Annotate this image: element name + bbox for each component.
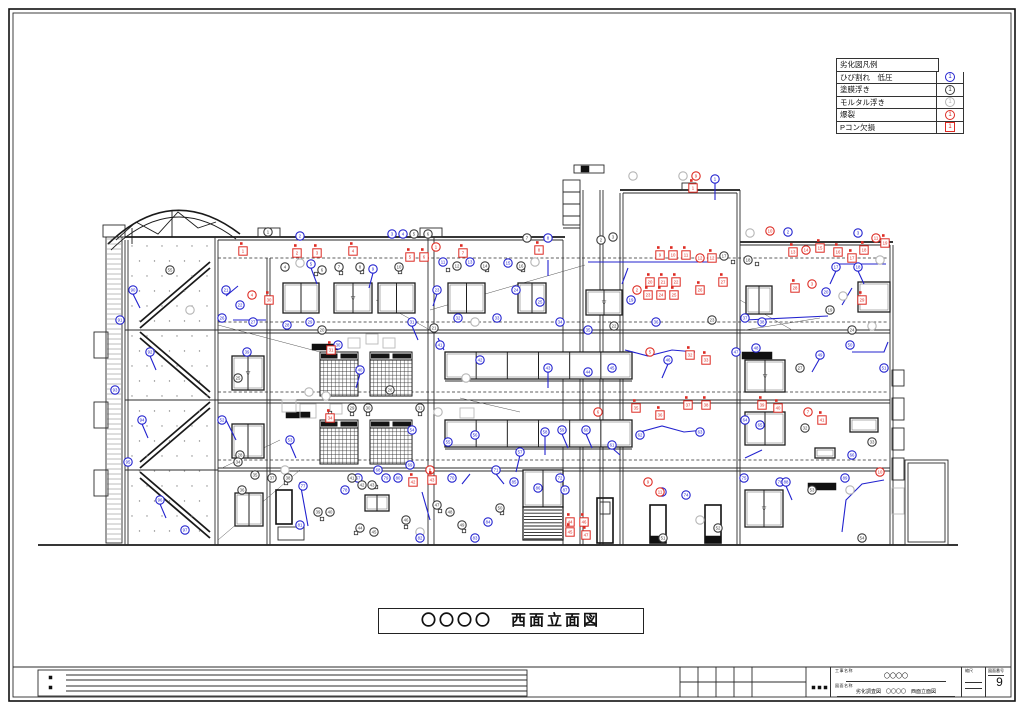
legend-symbol-circle: 1 bbox=[945, 97, 955, 107]
svg-text:21: 21 bbox=[661, 280, 666, 285]
project-name: 〇〇〇〇 bbox=[846, 671, 946, 682]
svg-text:26: 26 bbox=[698, 288, 703, 293]
svg-text:42: 42 bbox=[411, 480, 416, 485]
svg-text:27: 27 bbox=[251, 320, 256, 325]
svg-text:45: 45 bbox=[610, 366, 615, 371]
svg-text:13: 13 bbox=[791, 250, 796, 255]
svg-text:15: 15 bbox=[818, 246, 823, 251]
svg-text:33: 33 bbox=[495, 316, 500, 321]
legend-symbol-circle: 1 bbox=[945, 85, 955, 95]
svg-text:▽: ▽ bbox=[763, 374, 768, 380]
svg-text:30: 30 bbox=[336, 343, 341, 348]
legend-row: ひび割れ 低圧1 bbox=[836, 72, 965, 85]
svg-text:29: 29 bbox=[860, 298, 865, 303]
svg-text:13: 13 bbox=[468, 260, 473, 265]
svg-text:20: 20 bbox=[824, 290, 829, 295]
svg-text:17: 17 bbox=[850, 256, 855, 261]
svg-text:85: 85 bbox=[512, 480, 517, 485]
svg-text:71: 71 bbox=[494, 468, 499, 473]
svg-text:16: 16 bbox=[519, 264, 524, 269]
legend-row: 爆裂1 bbox=[836, 109, 965, 122]
legend-label: ひび割れ 低圧 bbox=[836, 72, 937, 85]
svg-text:50: 50 bbox=[848, 343, 853, 348]
svg-text:16: 16 bbox=[836, 250, 841, 255]
svg-text:44: 44 bbox=[586, 370, 591, 375]
svg-text:10: 10 bbox=[878, 470, 883, 475]
svg-text:48: 48 bbox=[448, 510, 453, 515]
svg-text:55: 55 bbox=[446, 440, 451, 445]
svg-text:51: 51 bbox=[661, 536, 666, 541]
svg-text:86: 86 bbox=[536, 486, 541, 491]
svg-text:47: 47 bbox=[734, 350, 739, 355]
svg-text:14: 14 bbox=[483, 264, 488, 269]
svg-text:83: 83 bbox=[473, 536, 478, 541]
svg-text:22: 22 bbox=[612, 324, 617, 329]
svg-text:91: 91 bbox=[118, 318, 123, 323]
svg-text:81: 81 bbox=[298, 523, 303, 528]
svg-text:27: 27 bbox=[798, 366, 803, 371]
legend-row: モルタル浮き1 bbox=[836, 97, 965, 110]
svg-text:29: 29 bbox=[350, 406, 355, 411]
svg-text:26: 26 bbox=[220, 316, 225, 321]
legend-label: 塗膜浮き bbox=[836, 84, 937, 97]
svg-text:22: 22 bbox=[238, 303, 243, 308]
svg-text:32: 32 bbox=[688, 353, 693, 358]
svg-text:25: 25 bbox=[538, 300, 543, 305]
svg-text:64: 64 bbox=[743, 418, 748, 423]
legend-symbol-cell: 1 bbox=[937, 72, 964, 85]
svg-text:63: 63 bbox=[698, 430, 703, 435]
svg-text:92: 92 bbox=[148, 350, 153, 355]
svg-text:38: 38 bbox=[286, 476, 291, 481]
svg-text:29: 29 bbox=[308, 320, 313, 325]
svg-text:41: 41 bbox=[438, 343, 443, 348]
svg-text:10: 10 bbox=[671, 253, 676, 258]
legend-symbol-circle: 1 bbox=[945, 72, 955, 82]
svg-text:34: 34 bbox=[558, 320, 563, 325]
svg-text:41: 41 bbox=[820, 418, 825, 423]
svg-text:▽: ▽ bbox=[246, 371, 251, 377]
svg-text:31: 31 bbox=[418, 406, 423, 411]
scale-label: 縮尺 bbox=[965, 668, 973, 674]
svg-text:46: 46 bbox=[666, 358, 671, 363]
title-block-main: 工事名称 〇〇〇〇 図面名称 劣化調査図 〇〇〇〇 西面立面図 bbox=[831, 667, 961, 697]
svg-text:35: 35 bbox=[634, 406, 639, 411]
svg-text:43: 43 bbox=[370, 483, 375, 488]
sheet-number-cell: 図面番号 9 bbox=[985, 667, 1013, 697]
svg-text:18: 18 bbox=[856, 265, 861, 270]
svg-text:46: 46 bbox=[404, 518, 409, 523]
svg-text:21: 21 bbox=[432, 326, 437, 331]
svg-text:28: 28 bbox=[793, 286, 798, 291]
svg-text:75: 75 bbox=[742, 476, 747, 481]
legend-row: Pコン欠損1 bbox=[836, 122, 965, 135]
svg-text:36: 36 bbox=[240, 488, 245, 493]
svg-text:30: 30 bbox=[267, 298, 272, 303]
svg-text:57: 57 bbox=[518, 450, 523, 455]
svg-text:37: 37 bbox=[686, 403, 691, 408]
legend-label: Pコン欠損 bbox=[836, 122, 937, 135]
svg-text:79: 79 bbox=[384, 476, 389, 481]
svg-text:93: 93 bbox=[113, 388, 118, 393]
sheet-number: 9 bbox=[986, 675, 1013, 689]
legend-label: モルタル浮き bbox=[836, 97, 937, 110]
svg-text:19: 19 bbox=[629, 298, 634, 303]
svg-text:89: 89 bbox=[843, 476, 848, 481]
svg-text:54: 54 bbox=[410, 428, 415, 433]
svg-text:39: 39 bbox=[760, 403, 765, 408]
svg-text:40: 40 bbox=[776, 406, 781, 411]
legend-symbol-circle: 1 bbox=[945, 110, 955, 120]
svg-text:96: 96 bbox=[158, 498, 163, 503]
svg-text:28: 28 bbox=[285, 323, 290, 328]
scale-line bbox=[965, 682, 982, 683]
legend-symbol-square: 1 bbox=[945, 122, 955, 132]
svg-text:42: 42 bbox=[478, 358, 483, 363]
title-block: 工事名称 〇〇〇〇 図面名称 劣化調査図 〇〇〇〇 西面立面図 縮尺 図面番号 … bbox=[830, 667, 1012, 697]
svg-text:34: 34 bbox=[328, 416, 333, 421]
svg-text:15: 15 bbox=[506, 261, 511, 266]
svg-text:72: 72 bbox=[558, 476, 563, 481]
svg-text:53: 53 bbox=[810, 488, 815, 493]
svg-text:38: 38 bbox=[760, 320, 765, 325]
svg-text:19: 19 bbox=[883, 241, 888, 246]
svg-text:94: 94 bbox=[140, 418, 145, 423]
svg-text:95: 95 bbox=[126, 460, 131, 465]
svg-text:33: 33 bbox=[870, 440, 875, 445]
svg-text:20: 20 bbox=[648, 280, 653, 285]
svg-text:49: 49 bbox=[818, 353, 823, 358]
svg-text:▽: ▽ bbox=[351, 296, 356, 302]
svg-text:28: 28 bbox=[238, 453, 243, 458]
svg-text:10: 10 bbox=[397, 265, 402, 270]
svg-text:32: 32 bbox=[456, 316, 461, 321]
svg-text:11: 11 bbox=[684, 253, 689, 258]
svg-text:56: 56 bbox=[473, 433, 478, 438]
svg-text:18: 18 bbox=[746, 258, 751, 263]
scale-line bbox=[965, 688, 982, 689]
svg-text:74: 74 bbox=[684, 493, 689, 498]
svg-text:97: 97 bbox=[183, 528, 188, 533]
svg-text:59: 59 bbox=[560, 428, 565, 433]
scale-cell: 縮尺 bbox=[961, 667, 986, 697]
svg-text:31: 31 bbox=[329, 348, 334, 353]
svg-text:70: 70 bbox=[450, 476, 455, 481]
svg-text:25: 25 bbox=[672, 293, 677, 298]
svg-text:80: 80 bbox=[396, 476, 401, 481]
svg-text:53: 53 bbox=[288, 438, 293, 443]
svg-text:35: 35 bbox=[253, 473, 258, 478]
svg-text:43: 43 bbox=[546, 366, 551, 371]
svg-text:36: 36 bbox=[658, 413, 663, 418]
svg-text:78: 78 bbox=[343, 488, 348, 493]
svg-text:22: 22 bbox=[674, 280, 679, 285]
svg-text:19: 19 bbox=[828, 308, 833, 313]
svg-text:35: 35 bbox=[586, 328, 591, 333]
svg-text:37: 37 bbox=[270, 476, 275, 481]
svg-text:11: 11 bbox=[441, 260, 446, 265]
svg-text:32: 32 bbox=[803, 426, 808, 431]
svg-text:88: 88 bbox=[784, 480, 789, 485]
svg-text:37: 37 bbox=[743, 316, 748, 321]
svg-text:90: 90 bbox=[131, 288, 136, 293]
svg-text:39: 39 bbox=[245, 350, 250, 355]
svg-text:33: 33 bbox=[704, 358, 709, 363]
svg-text:23: 23 bbox=[646, 293, 651, 298]
svg-text:11: 11 bbox=[658, 490, 663, 495]
legend-symbol-cell: 1 bbox=[937, 122, 964, 135]
svg-text:87: 87 bbox=[563, 488, 568, 493]
svg-text:52: 52 bbox=[716, 526, 721, 531]
svg-text:55: 55 bbox=[168, 268, 173, 273]
legend-row: 塗膜浮き1 bbox=[836, 84, 965, 97]
svg-text:84: 84 bbox=[486, 520, 491, 525]
svg-text:46: 46 bbox=[582, 520, 587, 525]
svg-text:11: 11 bbox=[874, 236, 879, 241]
legend-table: 劣化図凡例 ひび割れ 低圧1塗膜浮き1モルタル浮き1爆裂1Pコン欠損1 bbox=[836, 58, 965, 134]
svg-text:26: 26 bbox=[388, 388, 393, 393]
svg-text:61: 61 bbox=[610, 443, 615, 448]
svg-text:▽: ▽ bbox=[762, 507, 767, 513]
svg-text:40: 40 bbox=[328, 510, 333, 515]
svg-text:60: 60 bbox=[584, 428, 589, 433]
svg-text:65: 65 bbox=[758, 423, 763, 428]
svg-text:12: 12 bbox=[698, 256, 703, 261]
svg-text:43: 43 bbox=[430, 478, 435, 483]
svg-text:69: 69 bbox=[408, 463, 413, 468]
svg-text:23: 23 bbox=[710, 318, 715, 323]
legend-symbol-cell: 1 bbox=[937, 109, 964, 122]
svg-text:36: 36 bbox=[654, 320, 659, 325]
svg-text:82: 82 bbox=[418, 536, 423, 541]
svg-text:14: 14 bbox=[804, 248, 809, 253]
svg-text:66: 66 bbox=[850, 453, 855, 458]
svg-text:45: 45 bbox=[372, 530, 377, 535]
svg-text:48: 48 bbox=[754, 346, 759, 351]
legend-title: 劣化図凡例 bbox=[836, 58, 939, 72]
svg-text:30: 30 bbox=[366, 406, 371, 411]
svg-text:▽: ▽ bbox=[602, 301, 607, 307]
svg-text:42: 42 bbox=[360, 483, 365, 488]
svg-text:31: 31 bbox=[410, 320, 415, 325]
svg-text:44: 44 bbox=[358, 526, 363, 531]
svg-text:41: 41 bbox=[350, 476, 355, 481]
svg-text:54: 54 bbox=[860, 536, 865, 541]
legend-symbol-cell: 1 bbox=[937, 84, 964, 97]
svg-text:47: 47 bbox=[584, 533, 589, 538]
drawing-sheet: ▽▽▽▽▽12345678239111023111234567184567891… bbox=[0, 0, 1024, 710]
drawing-name: 劣化調査図 〇〇〇〇 西面立面図 bbox=[837, 688, 955, 697]
svg-text:62: 62 bbox=[638, 433, 643, 438]
svg-text:24: 24 bbox=[514, 288, 519, 293]
svg-text:47: 47 bbox=[435, 503, 440, 508]
svg-text:68: 68 bbox=[376, 468, 381, 473]
svg-text:40: 40 bbox=[358, 368, 363, 373]
svg-text:23: 23 bbox=[435, 288, 440, 293]
svg-text:21: 21 bbox=[224, 288, 229, 293]
svg-text:18: 18 bbox=[862, 248, 867, 253]
legend-symbol-cell: 1 bbox=[937, 97, 964, 110]
svg-text:17: 17 bbox=[834, 265, 839, 270]
svg-text:34: 34 bbox=[236, 460, 241, 465]
svg-text:52: 52 bbox=[220, 418, 225, 423]
svg-text:51: 51 bbox=[882, 366, 887, 371]
svg-text:58: 58 bbox=[543, 430, 548, 435]
svg-text:27: 27 bbox=[721, 280, 726, 285]
svg-text:39: 39 bbox=[316, 510, 321, 515]
svg-text:50: 50 bbox=[498, 506, 503, 511]
svg-text:10: 10 bbox=[768, 229, 773, 234]
svg-text:77: 77 bbox=[301, 484, 306, 489]
svg-text:25: 25 bbox=[236, 376, 241, 381]
svg-text:12: 12 bbox=[710, 256, 715, 261]
svg-text:38: 38 bbox=[704, 403, 709, 408]
svg-text:49: 49 bbox=[460, 523, 465, 528]
drawing-title-box: 〇〇〇〇 西面立面図 bbox=[378, 608, 644, 634]
svg-text:24: 24 bbox=[850, 328, 855, 333]
svg-text:17: 17 bbox=[722, 254, 727, 259]
svg-text:12: 12 bbox=[455, 264, 460, 269]
legend-label: 爆裂 bbox=[836, 109, 937, 122]
svg-text:20: 20 bbox=[320, 328, 325, 333]
svg-text:24: 24 bbox=[659, 293, 664, 298]
svg-text:45: 45 bbox=[568, 530, 573, 535]
